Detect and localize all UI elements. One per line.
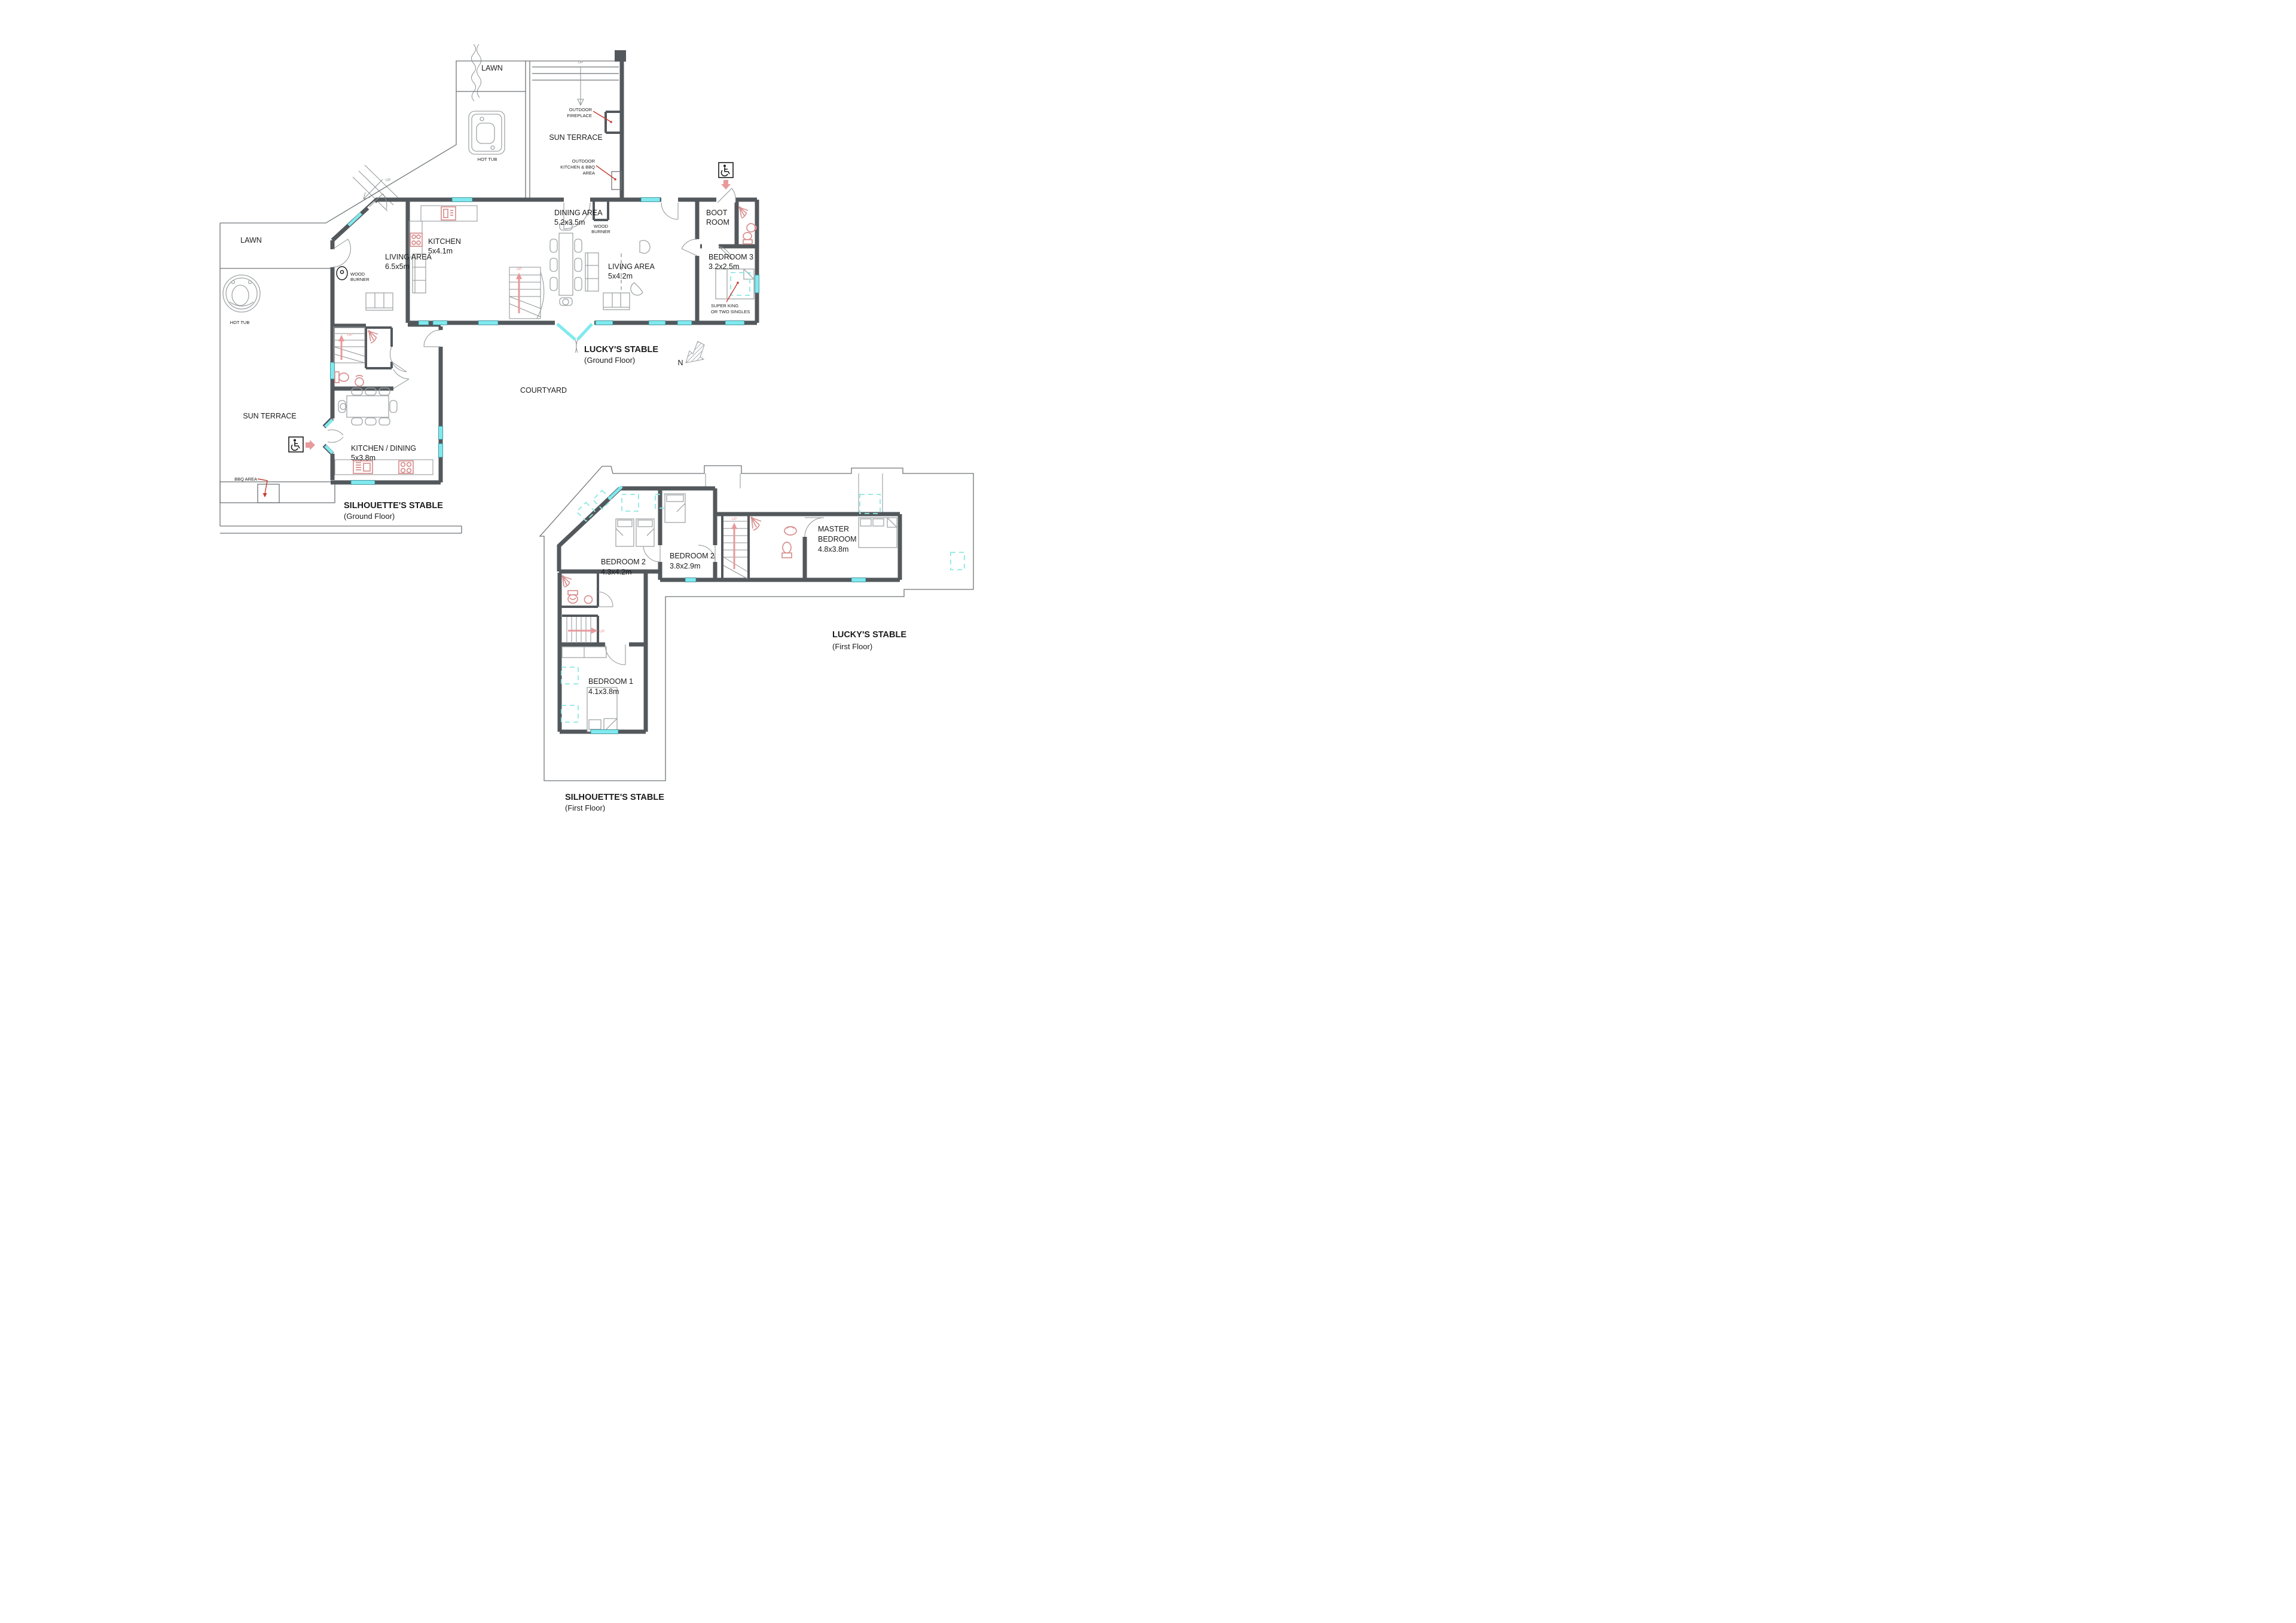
living-silhouettes-dims: 6.5x5m [385,262,410,271]
window [641,198,660,202]
ground-floor-labels: LAWN UP SUN TERRACE HOT TUB OUTDOOR FIRE… [230,60,753,521]
outdoor-fireplace [606,112,620,133]
bedroom2a-label: BEDROOM 2 [601,558,646,566]
first-floor-labels: BEDROOM 2 4.3x4.2m BEDROOM 2 3.8x2.9m MA… [565,525,906,812]
wheelchair-head [294,439,296,442]
luckys-ff-perimeter [559,488,900,580]
hot-tub-left-label: HOT TUB [230,320,250,325]
toilet-bowl [743,233,752,240]
bed [665,494,685,522]
dining-label: DINING AREA [554,209,603,217]
basin-tap [356,375,363,377]
ensuite-door [598,592,613,607]
bedroom2a-door [643,545,660,562]
wheelchair-head [723,165,726,167]
chair [550,277,557,291]
kitchen-dining-label: KITCHEN / DINING [351,444,416,453]
door-gap [367,201,379,213]
basin [585,596,593,604]
dining-table [559,233,573,295]
window [331,362,335,379]
terrace-step-arrow [578,67,584,105]
bbq-area-label: BBQ AREA [234,476,257,482]
armchair [631,283,643,295]
hot-tub-top [469,111,505,154]
luckys-ff-title: LUCKY'S STABLE [832,630,906,640]
bedroom2b-dims: 3.8x2.9m [670,562,700,570]
door-gap [661,197,678,203]
window [439,426,443,439]
wood-burner-living-label-1: WOOD [350,271,365,277]
bbq-terrace [220,479,335,503]
luckys-gf-title: LUCKY'S STABLE [584,345,658,354]
diagonal-window [609,487,622,499]
hob [410,233,422,246]
silhouettes-ff-interior [560,573,598,644]
chair [575,258,582,271]
leader-dot [737,282,739,284]
outdoor-kitchen-leader [596,166,615,179]
stair-enclosure [334,327,365,363]
window [649,321,665,325]
door-gap [702,243,719,249]
luckys-staircase: UP [509,267,544,319]
bbq-unit [258,484,279,503]
wheelchair-access-silhouettes [289,437,315,452]
outdoor-kitchen-label-1: OUTDOOR [572,158,596,164]
boot-room-label-2: ROOM [706,218,729,227]
dining-table-luckys [550,222,582,305]
bedroom2a-dims: 4.3x4.2m [601,568,631,576]
door-gap [694,239,700,256]
wall-pier [615,50,626,62]
master-label-2: BEDROOM [818,535,857,543]
french-door-swing [575,340,578,353]
silhouettes-ff-subtitle: (First Floor) [565,803,605,812]
chair [338,401,346,412]
roof-window [622,494,639,511]
stair-arrowhead [338,335,344,341]
hot-tub-basin [232,285,249,305]
window [433,321,447,325]
entrance-arrow [721,180,731,189]
leader-dot [614,178,616,181]
sofa [585,253,599,291]
bbq-leader-arrow [263,493,267,497]
chair [550,239,557,252]
north-arrow [686,341,704,363]
shower-spray [752,518,761,530]
sun-terrace-left-label: SUN TERRACE [243,412,296,420]
wood-burner-dining-label-2: BURNER [591,229,610,234]
stair-arrowhead [516,273,522,279]
bedroom3-furniture [716,269,754,302]
door-arc [661,203,678,219]
first-floor: UP [540,466,973,812]
armchair [640,240,650,253]
stair-arrowhead [731,522,737,529]
window [351,481,375,485]
terrace-up-label: UP [578,60,583,65]
outdoor-fireplace-label-2: FIREPLACE [567,113,592,118]
door-gap [438,330,444,347]
bed [859,518,897,548]
bay-window [349,213,361,225]
chair [575,277,582,291]
dining-table [347,396,389,417]
window [596,321,613,325]
person [563,299,569,305]
leader-dot [610,121,612,123]
dormer-window [860,494,880,514]
bed [636,519,654,546]
hot-tub-left [223,275,260,312]
luckys-ground-floor: UP [408,163,759,353]
window [725,321,744,325]
master-bed [859,518,897,548]
stair-treads [723,521,747,579]
north-label: N [677,359,683,367]
chair [352,418,362,425]
silhouettes-shower-room [368,330,378,343]
stair-treads [509,275,541,317]
toilet-cistern [335,372,339,383]
stair-treads [334,334,365,363]
window [685,578,696,582]
outdoor-kitchen-label-3: AREA [583,170,595,176]
bedroom3-dims: 3.2x2.5m [709,262,739,271]
outdoor-fireplace-label-1: OUTDOOR [569,107,593,112]
bed [616,519,634,546]
chair [575,239,582,252]
stairs-up-label: UP [599,629,604,634]
floor-plan-canvas: UP [0,0,1148,812]
silhouettes-gf-subtitle: (Ground Floor) [344,512,395,521]
hall-door-arc [424,330,441,347]
stairs-up-label: UP [516,267,521,271]
shower-spray [563,576,572,587]
toilet-bowl [568,595,578,603]
silhouettes-ff-ensuite [561,575,592,603]
toilet-cistern [743,240,752,244]
hot-tub-outer-ring [223,275,260,312]
hot-tub-mid-ring [226,278,257,309]
living-luckys-label: LIVING AREA [608,262,655,271]
luckys-ff-staircase: UP [723,517,747,579]
shower-spray [369,331,378,343]
site-boundary-bottom [220,526,462,533]
kitchen-label: KITCHEN [428,237,461,246]
boot-room-label-1: BOOT [706,209,728,217]
lawn-top-label: LAWN [481,64,503,72]
wheelchair-access-luckys [719,163,733,189]
window [478,321,498,325]
hot-tub-jet [232,281,235,284]
window [851,578,866,582]
silhouettes-first-floor: UP [560,573,646,734]
super-king-label-1: SUPER KING [711,303,738,308]
bedroom2b-bed [665,494,685,522]
luckys-gf-subtitle: (Ground Floor) [584,356,635,365]
lawn-left-label: LAWN [240,236,262,244]
silhouettes-gf-title: SILHOUETTE'S STABLE [344,501,443,511]
silhouettes-ff-title: SILHOUETTE'S STABLE [565,793,664,802]
compass: N [677,341,704,367]
window [677,321,692,325]
luckys-ff-subtitle: (First Floor) [832,642,872,651]
living-silhouettes-label: LIVING AREA [385,253,432,261]
chair [365,418,376,425]
entrance-door-arcs [328,430,343,442]
sun-terrace-top [526,50,626,198]
hedge-line [472,44,481,101]
stairs-up-label: UP [347,333,352,337]
roof-window [561,705,578,722]
silhouettes-staircase: UP [334,327,365,363]
steps-up-label: UP [385,178,390,182]
steps-arrow [364,179,383,199]
door-gap [330,249,335,267]
hot-tub-top-label: HOT TUB [478,157,497,162]
terrace-edge [526,61,622,198]
roof-window [561,667,578,684]
kitchen-fittings-silhouettes [335,460,433,475]
bedroom1-door [605,644,625,665]
bbq-leader [258,479,267,494]
hot-tub-outer [469,111,505,154]
toilet-cistern [782,553,792,558]
luckys-shower-room [738,206,756,244]
master-dims: 4.8x3.8m [818,545,848,554]
wood-burner-living-label-2: BURNER [350,277,370,282]
hot-tub-jet [491,146,494,149]
hot-tub-jet [249,281,252,284]
bedroom1-label: BEDROOM 1 [588,677,633,686]
luckys-ff-bathroom [750,516,796,558]
hot-tub-basin [477,123,494,143]
wood-burner-dining-label-1: WOOD [594,224,609,229]
roof-window [951,552,964,570]
courtyard-label: COURTYARD [520,386,567,395]
living-luckys-dims: 5x4.2m [608,272,633,280]
shower-spray [740,207,748,218]
outdoor-kitchen-label-2: KITCHEN & BBQ [560,164,595,170]
bedroom1-dims: 4.1x3.8m [588,687,619,696]
toilet-cistern [568,591,578,595]
door-gap [564,197,590,203]
kitchen-dims: 5x4.1m [428,247,453,255]
bedroom2b-label: BEDROOM 2 [670,552,715,560]
window [419,321,429,325]
toilet-bowl [339,373,349,381]
window [755,275,759,293]
kitchen-dining-dims: 5x3.8m [351,454,375,462]
wood-burner-living [337,267,347,280]
dining-table-silhouettes [338,388,397,425]
chair [390,401,397,412]
bedroom3-label: BEDROOM 3 [709,253,753,261]
terrace-steps [532,67,619,80]
basin [355,378,364,386]
silhouettes-wc [335,372,364,386]
super-king-label-2: OR TWO SINGLES [711,309,750,314]
toilet-bowl [783,542,791,553]
chair [379,418,390,425]
master-label-1: MASTER [818,525,849,533]
window [591,730,618,734]
window [452,198,472,202]
counter [335,460,433,475]
dormer-sides [706,473,883,514]
basin [784,527,796,535]
chair [550,258,557,271]
wc-door-arc [393,369,409,389]
window [439,444,443,457]
stairs-up-label: UP [731,517,737,521]
bedroom2a-beds [616,519,654,546]
chamfer-windows [325,420,332,453]
door-gap [716,197,735,203]
terrace-band [220,482,335,503]
floor-plan-page: UP [0,0,1148,812]
sun-terrace-top-label: SUN TERRACE [549,133,602,142]
dining-dims: 5.2x3.5m [554,218,585,227]
basin [747,224,755,232]
entrance-arrow [306,440,315,450]
hot-tub-jet [480,117,484,121]
